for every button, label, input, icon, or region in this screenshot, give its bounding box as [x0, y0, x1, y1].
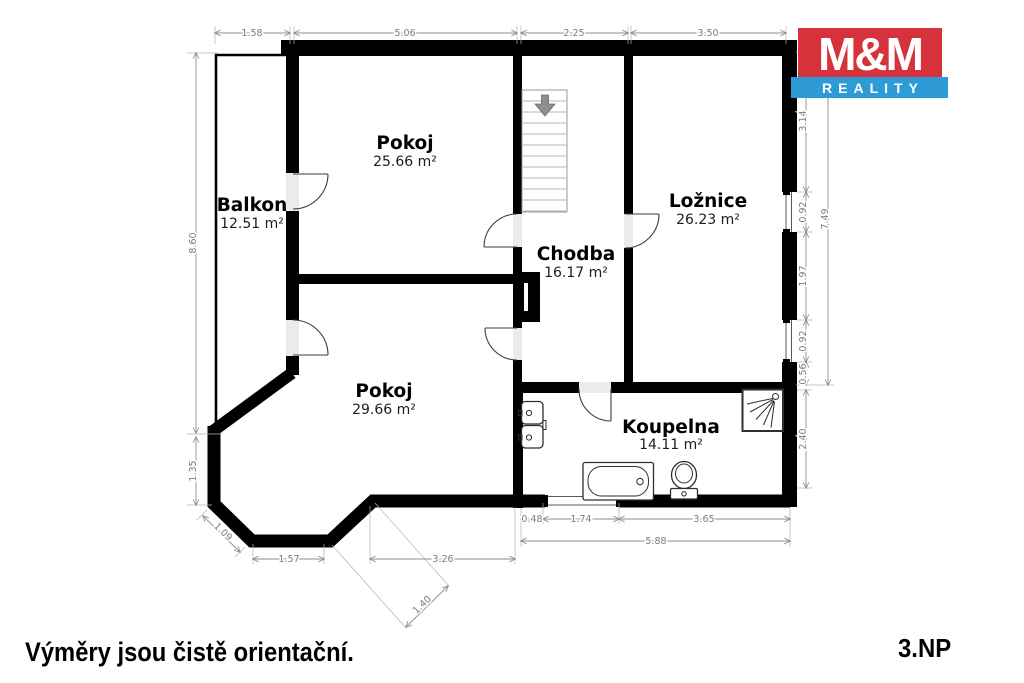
dim-bottom-left: 1.57 — [278, 554, 299, 565]
dim-top-2: 5.06 — [394, 28, 415, 39]
logo-reality-text: REALITY — [822, 80, 924, 96]
dim-left-1: 8.60 — [188, 232, 199, 253]
floor-plan-page: Balkon 12.51 m² Pokoj 25.66 m² Chodba 16… — [0, 0, 1024, 683]
dimension-labels: 1.58 5.06 2.25 3.50 8.60 1.35 3.14 0.92 … — [188, 28, 831, 616]
wall-mid — [292, 274, 518, 284]
wall-right — [782, 40, 797, 507]
floor-plan-drawing: Balkon 12.51 m² Pokoj 25.66 m² Chodba 16… — [0, 0, 1024, 683]
room-area-pokoj-bottom: 29.66 m² — [352, 402, 416, 418]
logo-mm-text: M&M — [818, 28, 922, 80]
dim-left-2: 1.35 — [188, 460, 199, 481]
toilet — [671, 462, 698, 500]
wall-top — [281, 40, 790, 56]
window-right-upper — [782, 192, 797, 232]
dim-bottom-mid: 3.26 — [432, 554, 453, 565]
room-area-koupelna: 14.11 m² — [639, 437, 703, 453]
dim-bottom-right-1: 0.48 — [521, 514, 542, 525]
room-label-koupelna: Koupelna — [622, 417, 720, 438]
dim-right-5: 0.56 — [798, 363, 809, 384]
room-label-pokoj-top: Pokoj — [376, 133, 433, 154]
room-label-loznice: Ložnice — [669, 191, 747, 212]
dim-right-2: 0.92 — [798, 201, 809, 222]
room-label-chodba: Chodba — [537, 244, 615, 265]
door-pokoj-bottom-hall — [485, 328, 517, 360]
dim-right-lower: 2.40 — [798, 428, 809, 449]
room-label-balkon: Balkon — [217, 195, 288, 216]
dim-bottom-right-2: 1.74 — [570, 514, 591, 525]
room-area-chodba: 16.17 m² — [544, 265, 608, 281]
door-pokoj-top-hall — [484, 214, 517, 247]
shower — [743, 390, 784, 432]
room-area-loznice: 26.23 m² — [676, 212, 740, 228]
dim-right-4: 0.92 — [798, 330, 809, 351]
dim-right-total: 7.49 — [820, 208, 831, 229]
dim-bay-diag: 1.40 — [411, 594, 434, 616]
balcony-outline — [216, 55, 286, 431]
staircase — [522, 90, 567, 212]
floor-number-label: 3.NP — [898, 633, 951, 664]
dim-bottom-total: 5.88 — [645, 536, 666, 547]
disclaimer-text: Výměry jsou čistě orientační. — [25, 637, 354, 668]
dim-right-3: 1.97 — [798, 265, 809, 286]
bathtub — [583, 463, 654, 501]
dim-bottom-right-3: 3.65 — [693, 514, 714, 525]
room-area-balkon: 12.51 m² — [220, 216, 284, 232]
dim-top-4: 3.50 — [697, 28, 718, 39]
dim-top-3: 2.25 — [563, 28, 584, 39]
dim-top-1: 1.58 — [241, 28, 262, 39]
room-area-pokoj-top: 25.66 m² — [373, 154, 437, 170]
door-hall-bathroom — [579, 389, 611, 421]
mm-reality-logo: M&M REALITY — [791, 28, 948, 98]
room-label-pokoj-bottom: Pokoj — [355, 381, 412, 402]
window-right-lower — [782, 320, 797, 362]
dim-right-1: 3.14 — [798, 110, 809, 131]
